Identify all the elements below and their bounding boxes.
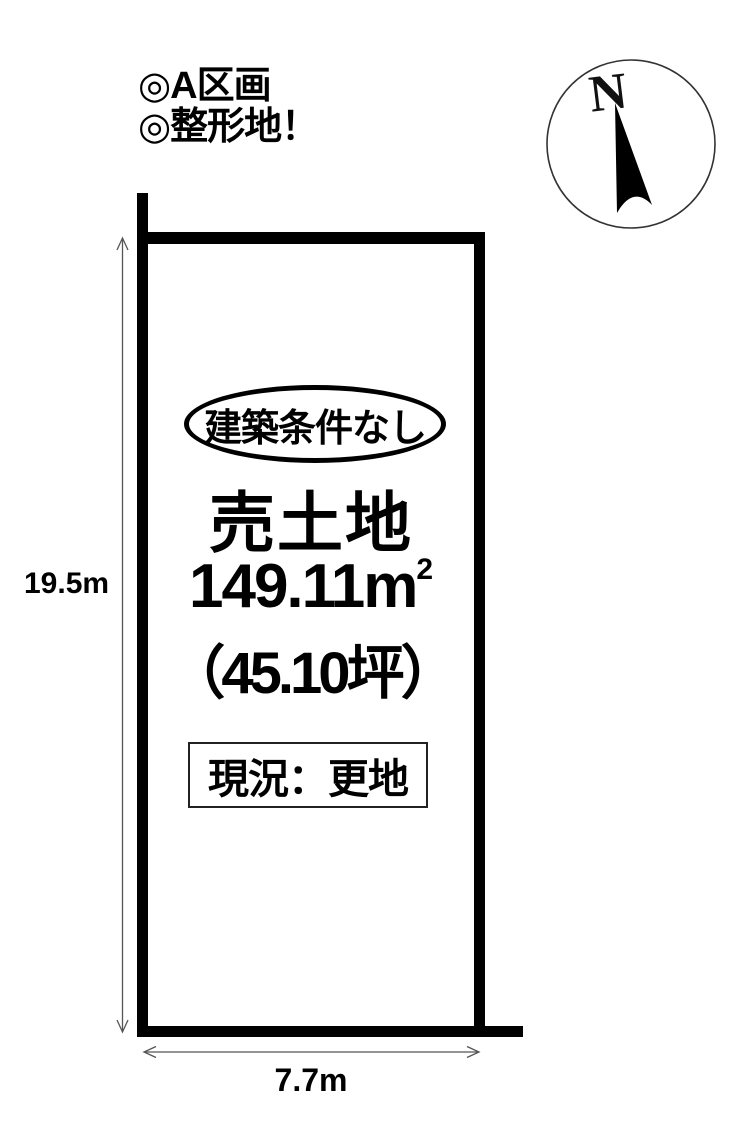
parcel-area-superscript: 2: [416, 553, 433, 586]
badge-label: 建築条件なし: [204, 397, 426, 452]
parcel-tsubo: （45.10坪）: [140, 626, 482, 710]
boundary-top: [137, 232, 485, 244]
land-plot-diagram: ◎A区画 ◎整形地！ N 建築条件なし 売土地: [0, 0, 740, 1143]
dimension-height-label: 19.5m: [24, 567, 109, 601]
dimension-width-label: 7.7m: [140, 1062, 482, 1099]
dimension-arrow-horizontal: [144, 1047, 479, 1058]
current-status-box: 現況：更地: [188, 742, 428, 808]
parcel-title-label: 売土地: [209, 486, 413, 560]
parcel-area: 149.11m2: [140, 551, 482, 622]
dimension-arrow-vertical: [117, 238, 128, 1032]
width-value: 7.7m: [275, 1062, 348, 1098]
height-value: 19.5m: [24, 567, 109, 600]
no-building-conditions-badge: 建築条件なし: [184, 385, 446, 463]
boundary-bottom: [137, 1026, 523, 1037]
parcel-tsubo-label: （45.10坪）: [167, 641, 454, 706]
parcel-area-value: 149.11m: [189, 552, 416, 621]
current-status-label: 現況：更地: [208, 745, 408, 805]
